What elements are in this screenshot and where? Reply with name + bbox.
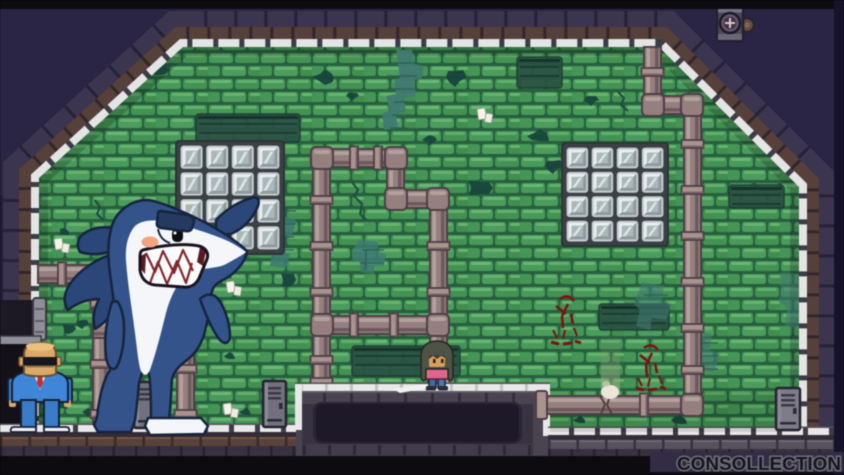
svg-text:CONSOLLECTION: CONSOLLECTION [677,454,841,474]
